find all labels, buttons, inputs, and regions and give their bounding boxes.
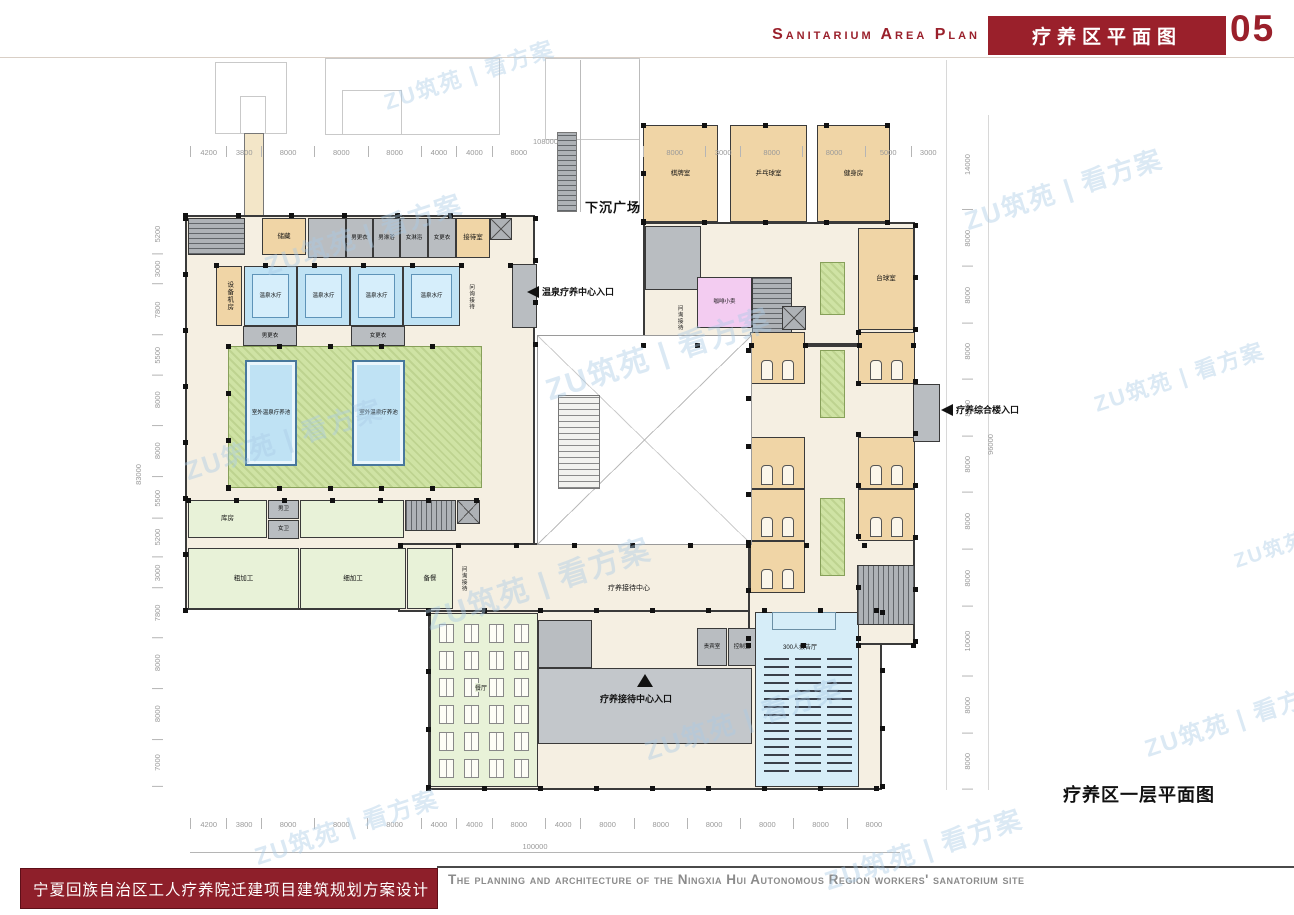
- dim-value: 8000: [152, 638, 163, 689]
- column-marker: [183, 272, 188, 277]
- bed-icon: [891, 360, 903, 380]
- room-control: 控制室: [728, 628, 756, 666]
- dim-value: 8000: [152, 426, 163, 477]
- dim-value: 8000: [261, 146, 314, 157]
- header-divider: [0, 57, 1294, 58]
- dim-value: 8000: [314, 818, 367, 829]
- column-marker: [183, 552, 188, 557]
- dim-value: 4200: [190, 146, 226, 157]
- column-marker: [762, 786, 767, 791]
- column-marker: [824, 220, 829, 225]
- dim-value: 8000: [740, 818, 793, 829]
- column-marker: [913, 223, 918, 228]
- dim-value: 8000: [261, 818, 314, 829]
- dim-value: 8000: [367, 818, 420, 829]
- room-wc-block: [308, 218, 346, 258]
- room-meal-prep: 备餐: [407, 548, 453, 609]
- room-women-wc: 女卫: [268, 520, 299, 539]
- dining-table: [439, 624, 454, 643]
- column-marker: [330, 498, 335, 503]
- column-marker: [856, 432, 861, 437]
- column-marker: [885, 220, 890, 225]
- bed-icon: [761, 465, 773, 485]
- dim-value: 8000: [847, 818, 900, 829]
- stairwell-topleft: [188, 218, 245, 255]
- dim-value: 8000: [962, 210, 973, 267]
- inquiry-desk-spa: 问询接待: [463, 270, 479, 324]
- column-marker: [183, 384, 188, 389]
- column-marker: [856, 643, 861, 648]
- footer-divider: [437, 866, 1294, 868]
- dim-top-left: 42003800800080008000400040008000: [190, 146, 545, 157]
- dim-value: 3800: [226, 818, 261, 829]
- dim-value: 8000: [962, 323, 973, 380]
- footer-caption-en: The planning and architecture of the Nin…: [448, 872, 1294, 887]
- dining-table: [514, 759, 529, 778]
- stairwell-bottomleft: [405, 500, 456, 531]
- dim-value: 10000: [962, 606, 973, 677]
- bed-icon: [870, 465, 882, 485]
- dining-hall-label: 餐厅: [475, 683, 487, 692]
- column-marker: [857, 343, 862, 348]
- dim-value: 8000: [687, 818, 740, 829]
- column-marker: [183, 608, 188, 613]
- therapy-room: [750, 489, 805, 541]
- column-marker: [289, 213, 294, 218]
- bed-icon: [761, 360, 773, 380]
- room-women-shower: 女淋浴: [400, 218, 428, 258]
- column-marker: [641, 219, 646, 224]
- bed-icon: [782, 360, 794, 380]
- dim-value: 4200: [190, 818, 226, 829]
- elevator-right: [782, 306, 806, 330]
- column-marker: [236, 213, 241, 218]
- column-marker: [426, 727, 431, 732]
- dim-value: 7000: [152, 740, 163, 787]
- column-marker: [448, 213, 453, 218]
- dim-value: 8000: [962, 733, 973, 790]
- room-spa-3: 温泉水疗: [350, 266, 403, 326]
- dim-bottom-overall-line: [190, 852, 900, 853]
- dim-value: 8000: [634, 818, 687, 829]
- column-marker: [594, 786, 599, 791]
- dim-left: 5200300078005500800080005500520030007800…: [152, 215, 163, 787]
- lecture-stage: [772, 612, 836, 630]
- column-marker: [312, 263, 317, 268]
- column-marker: [706, 786, 711, 791]
- watermark: ZU筑苑 | 看方案: [1139, 671, 1294, 764]
- outdoor-pool-1: 室外温泉疗养池: [245, 360, 297, 466]
- dim-left-overall: 83000: [134, 464, 143, 485]
- column-marker: [263, 263, 268, 268]
- column-marker: [630, 543, 635, 548]
- context-outline: [240, 96, 266, 134]
- column-marker: [746, 540, 751, 545]
- dim-value: 3000: [705, 146, 739, 157]
- dim-value: 8000: [314, 146, 367, 157]
- column-marker: [856, 534, 861, 539]
- column-marker: [746, 588, 751, 593]
- seat-column: [764, 658, 789, 776]
- column-marker: [746, 348, 751, 353]
- dining-table: [489, 732, 504, 751]
- dim-value: 8000: [962, 550, 973, 607]
- bed-icon: [782, 465, 794, 485]
- room-vip: 贵宾室: [697, 628, 727, 666]
- column-marker: [856, 381, 861, 386]
- column-marker: [426, 669, 431, 674]
- dim-value: 8000: [152, 375, 163, 426]
- column-marker: [880, 668, 885, 673]
- column-marker: [482, 608, 487, 613]
- column-marker: [650, 786, 655, 791]
- dining-table: [514, 678, 529, 697]
- dining-table: [514, 651, 529, 670]
- watermark: ZU筑苑 | 看方案: [1089, 333, 1268, 418]
- dim-value: 8000: [492, 146, 545, 157]
- column-marker: [650, 608, 655, 613]
- seat-column: [795, 658, 820, 776]
- watermark: ZU筑苑 | 看方案: [1230, 495, 1294, 573]
- dim-right: 1400080008000800080008000800080001000080…: [962, 120, 973, 790]
- dining-tables: [434, 620, 534, 782]
- dining-table: [514, 705, 529, 724]
- therapy-room: [750, 437, 805, 489]
- column-marker: [183, 496, 188, 501]
- dim-value: 8000: [492, 818, 545, 829]
- column-marker: [913, 327, 918, 332]
- dim-value: 4000: [456, 146, 491, 157]
- entrance-reception-label: 疗养接待中心入口: [600, 692, 672, 705]
- watermark: ZU筑苑 | 看方案: [959, 139, 1167, 238]
- column-marker: [379, 486, 384, 491]
- column-marker: [533, 216, 538, 221]
- dim-value: 7800: [152, 285, 163, 335]
- bed-icon: [761, 569, 773, 589]
- column-marker: [572, 543, 577, 548]
- room-women-changing-pool: 女更衣: [351, 326, 405, 346]
- room-spa-4: 温泉水疗: [403, 266, 460, 326]
- column-marker: [214, 263, 219, 268]
- room-spa-2: 温泉水疗: [297, 266, 350, 326]
- lecture-hall-label: 300人报告厅: [783, 642, 817, 651]
- bed-icon: [782, 569, 794, 589]
- column-marker: [533, 300, 538, 305]
- dim-value: 8000: [152, 689, 163, 740]
- column-marker: [395, 213, 400, 218]
- column-marker: [430, 486, 435, 491]
- column-marker: [459, 263, 464, 268]
- dim-value: 4000: [456, 818, 491, 829]
- dim-value: 7800: [152, 588, 163, 638]
- column-marker: [538, 786, 543, 791]
- lecture-seats: [764, 658, 852, 776]
- column-marker: [282, 498, 287, 503]
- dim-value: 8000: [368, 146, 421, 157]
- dim-value: 8000: [580, 818, 633, 829]
- dim-value: 5200: [152, 215, 163, 254]
- column-marker: [410, 263, 415, 268]
- column-marker: [641, 343, 646, 348]
- dining-table: [489, 705, 504, 724]
- seat-column: [827, 658, 852, 776]
- room-storeroom: 库房: [188, 500, 267, 538]
- column-marker: [328, 486, 333, 491]
- column-marker: [226, 391, 231, 396]
- column-marker: [426, 498, 431, 503]
- room-wc-rightwing: [645, 226, 701, 290]
- dining-table: [439, 732, 454, 751]
- column-marker: [641, 123, 646, 128]
- dim-value: 4000: [421, 146, 456, 157]
- dim-value: 3000: [152, 254, 163, 284]
- plan-caption: 疗养区一层平面图: [1063, 781, 1215, 807]
- column-marker: [226, 344, 231, 349]
- column-marker: [913, 639, 918, 644]
- dining-table: [464, 651, 479, 670]
- column-marker: [874, 608, 879, 613]
- column-marker: [426, 785, 431, 790]
- dim-value: 3000: [911, 146, 945, 157]
- column-marker: [913, 535, 918, 540]
- bed-icon: [761, 517, 773, 537]
- dining-table: [489, 624, 504, 643]
- room-rough-prep: 粗加工: [188, 548, 299, 609]
- column-marker: [803, 343, 808, 348]
- dim-value: 8000: [962, 436, 973, 493]
- column-marker: [474, 498, 479, 503]
- therapy-room: [858, 332, 915, 384]
- therapy-room: [858, 489, 915, 541]
- column-marker: [874, 786, 879, 791]
- room-coffee: 咖啡小卖: [697, 277, 752, 328]
- column-marker: [746, 396, 751, 401]
- column-marker: [818, 786, 823, 791]
- column-marker: [746, 636, 751, 641]
- dim-right-overall: 96000: [986, 434, 995, 455]
- bed-icon: [870, 360, 882, 380]
- column-marker: [746, 643, 751, 648]
- dim-value: 8000: [802, 146, 864, 157]
- column-marker: [862, 543, 867, 548]
- column-marker: [361, 263, 366, 268]
- bed-icon: [891, 517, 903, 537]
- column-marker: [378, 498, 383, 503]
- room-men-shower: 男淋浴: [373, 218, 400, 258]
- room-chess: 棋牌室: [643, 125, 718, 222]
- column-marker: [804, 543, 809, 548]
- room-service: [300, 500, 404, 538]
- therapy-room: [750, 332, 805, 384]
- dim-value: 5200: [152, 518, 163, 557]
- column-marker: [508, 263, 513, 268]
- dim-value: 4000: [421, 818, 456, 829]
- column-marker: [856, 636, 861, 641]
- room-reception: 接待室: [456, 218, 490, 258]
- planter: [820, 262, 845, 315]
- dining-table: [464, 732, 479, 751]
- column-marker: [913, 483, 918, 488]
- column-marker: [426, 611, 431, 616]
- column-marker: [183, 440, 188, 445]
- dim-value: 5500: [152, 335, 163, 376]
- stairwell-bottomright: [857, 565, 915, 625]
- entrance-complex-label: 疗养综合楼入口: [956, 403, 1019, 416]
- column-marker: [913, 587, 918, 592]
- room-gym: 健身房: [817, 125, 890, 222]
- column-marker: [226, 485, 231, 490]
- context-outline: [342, 90, 402, 135]
- room-women-changing: 女更衣: [428, 218, 456, 258]
- header-title-zh: 疗养区平面图: [988, 16, 1226, 55]
- reception-center-label: 疗养接待中心: [608, 583, 650, 593]
- column-marker: [913, 275, 918, 280]
- column-marker: [342, 213, 347, 218]
- column-marker: [641, 171, 646, 176]
- column-marker: [533, 258, 538, 263]
- sunken-plaza-label: 下沉广场: [585, 197, 641, 216]
- header-title-en: Sanitarium Area Plan: [640, 26, 980, 44]
- dim-bottom-overall: 100000: [480, 842, 590, 851]
- dining-table: [439, 759, 454, 778]
- dim-value: 14000: [962, 120, 973, 210]
- column-marker: [856, 483, 861, 488]
- bed-icon: [870, 517, 882, 537]
- column-marker: [818, 608, 823, 613]
- column-marker: [746, 444, 751, 449]
- column-marker: [430, 344, 435, 349]
- column-marker: [702, 220, 707, 225]
- column-marker: [328, 344, 333, 349]
- footer-project-title: 宁夏回族自治区工人疗养院迁建项目建筑规划方案设计: [20, 868, 438, 909]
- page-number: 05: [1230, 8, 1275, 50]
- column-marker: [913, 431, 918, 436]
- column-marker: [801, 643, 806, 648]
- dining-table: [439, 678, 454, 697]
- column-marker: [762, 608, 767, 613]
- dim-value: 3800: [226, 146, 261, 157]
- dining-table: [439, 705, 454, 724]
- room-storage: 储藏: [262, 218, 306, 255]
- courtyard-stair: [558, 395, 600, 489]
- room-men-changing-pool: 男更衣: [243, 326, 297, 346]
- column-marker: [880, 726, 885, 731]
- dim-value: 8000: [740, 146, 802, 157]
- dim-value: 8000: [962, 267, 973, 324]
- column-marker: [688, 543, 693, 548]
- column-marker: [514, 543, 519, 548]
- entrance-arrow-icon: [527, 286, 539, 298]
- elevator-topleft: [490, 218, 512, 240]
- column-marker: [913, 379, 918, 384]
- room-spa-1: 温泉水疗: [244, 266, 297, 326]
- column-marker: [456, 543, 461, 548]
- column-marker: [763, 220, 768, 225]
- column-marker: [234, 498, 239, 503]
- dim-top-overall: 108000: [533, 137, 558, 146]
- dim-top-right: 800030008000800050003000: [643, 146, 945, 157]
- entrance-arrow-icon: [941, 404, 953, 416]
- planter: [820, 498, 845, 576]
- column-marker: [911, 343, 916, 348]
- column-marker: [880, 610, 885, 615]
- dim-bottom: 4200380080008000800040004000800040008000…: [190, 818, 900, 829]
- ramp-lines: [580, 60, 640, 212]
- column-marker: [501, 213, 506, 218]
- column-marker: [824, 123, 829, 128]
- column-marker: [702, 123, 707, 128]
- dim-value: 8000: [643, 146, 705, 157]
- dim-value: 5500: [152, 478, 163, 519]
- room-men-changing: 男更衣: [346, 218, 373, 258]
- column-marker: [398, 543, 403, 548]
- room-table-tennis: 乒乓球室: [730, 125, 807, 222]
- column-marker: [594, 608, 599, 613]
- dining-table: [514, 732, 529, 751]
- dining-table: [514, 624, 529, 643]
- dim-value: 8000: [793, 818, 846, 829]
- therapy-room: [858, 437, 915, 489]
- column-marker: [482, 786, 487, 791]
- therapy-room: [750, 541, 805, 593]
- outdoor-pool-2: 室外温泉疗养池: [352, 360, 405, 466]
- dining-table: [464, 624, 479, 643]
- dining-table: [489, 759, 504, 778]
- column-marker: [379, 344, 384, 349]
- dim-value: 5000: [865, 146, 911, 157]
- column-marker: [226, 438, 231, 443]
- plaza-stair: [557, 132, 577, 212]
- bed-icon: [891, 465, 903, 485]
- dining-table: [439, 651, 454, 670]
- room-wc-reception: [538, 620, 592, 668]
- room-fine-prep: 细加工: [300, 548, 406, 609]
- column-marker: [856, 330, 861, 335]
- inquiry-desk-corridor: 问询接待: [456, 552, 471, 606]
- column-marker: [695, 343, 700, 348]
- column-marker: [183, 328, 188, 333]
- planter: [820, 350, 845, 418]
- entrance-arrow-icon: [637, 674, 653, 687]
- column-marker: [763, 123, 768, 128]
- grid-extension-line: [946, 60, 947, 790]
- entrance-spa-label: 温泉疗养中心入口: [542, 285, 614, 298]
- dining-table: [489, 678, 504, 697]
- column-marker: [277, 344, 282, 349]
- dim-value: 4000: [545, 818, 580, 829]
- dim-value: 3000: [152, 558, 163, 588]
- column-marker: [533, 342, 538, 347]
- column-marker: [746, 492, 751, 497]
- dining-table: [464, 705, 479, 724]
- dim-value: 8000: [962, 493, 973, 550]
- dining-table: [489, 651, 504, 670]
- column-marker: [538, 608, 543, 613]
- dim-value: 8000: [962, 677, 973, 734]
- column-marker: [856, 585, 861, 590]
- column-marker: [885, 123, 890, 128]
- column-marker: [706, 608, 711, 613]
- elevator-bottomleft: [457, 500, 480, 524]
- room-billiards: 台球室: [858, 228, 914, 330]
- column-marker: [277, 486, 282, 491]
- dining-table: [464, 759, 479, 778]
- column-marker: [880, 784, 885, 789]
- bed-icon: [782, 517, 794, 537]
- room-equipment: 设备机房: [216, 266, 242, 326]
- column-marker: [183, 216, 188, 221]
